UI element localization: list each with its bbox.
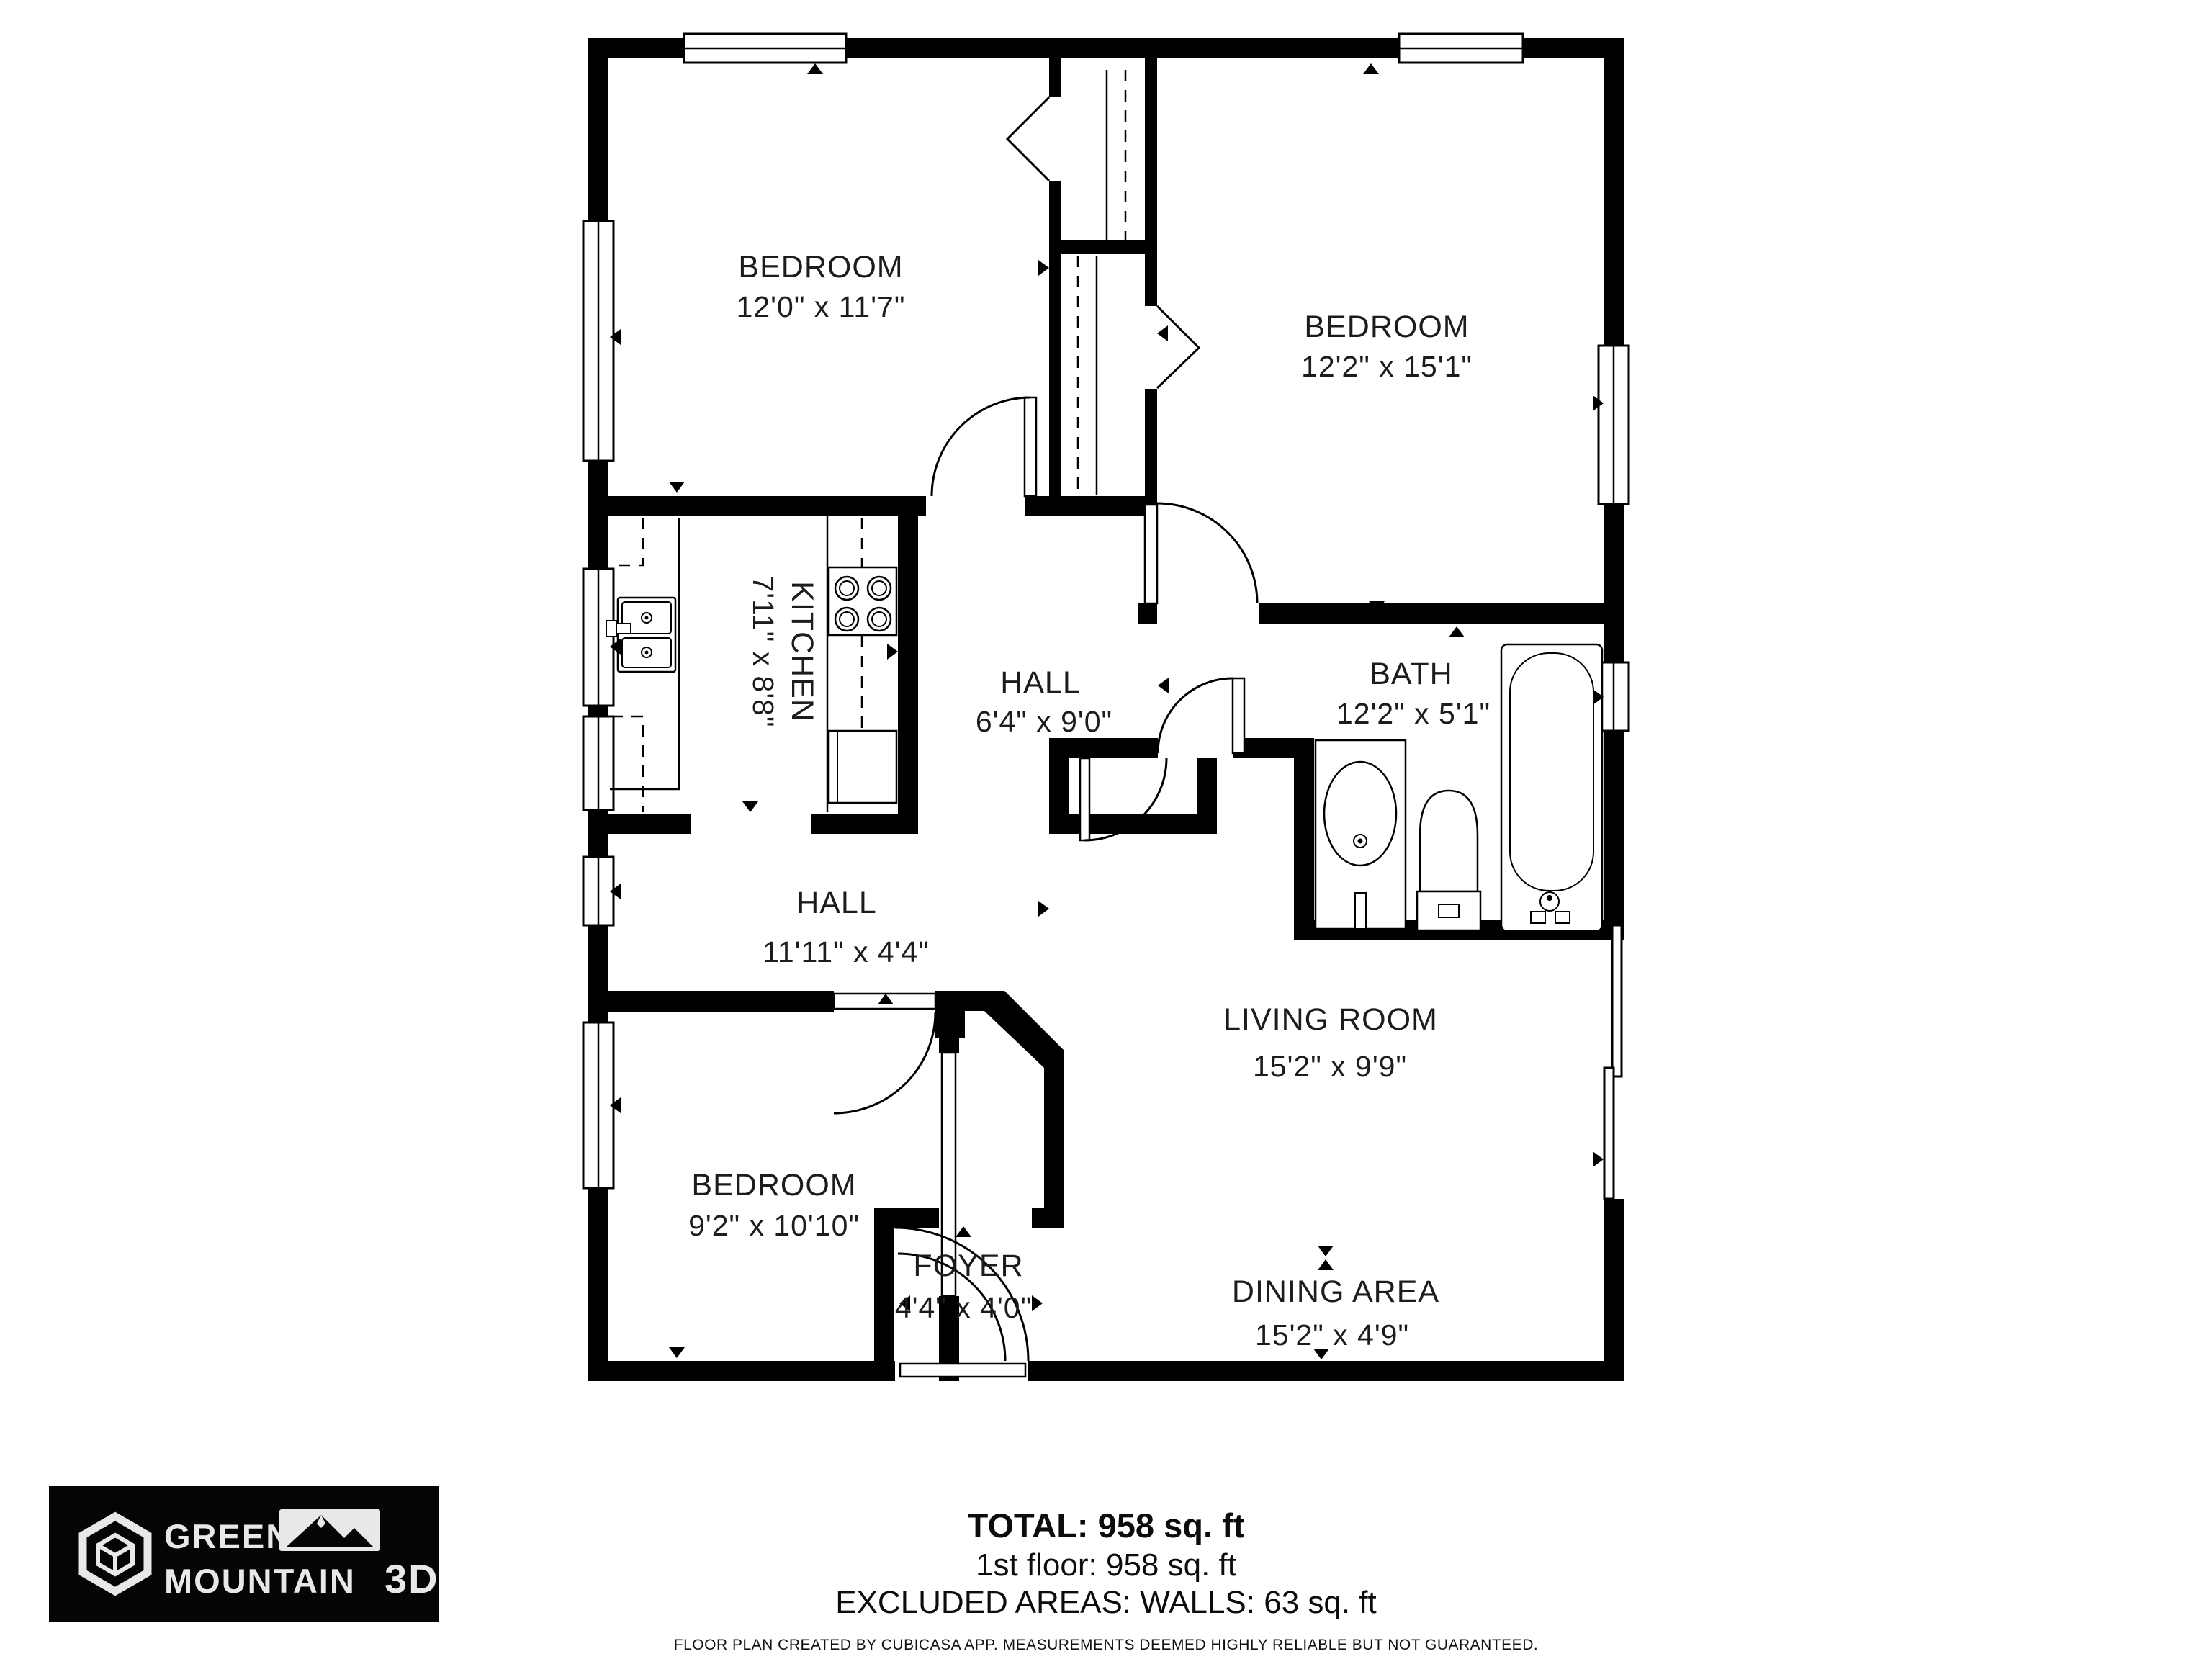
floor-plan-page: BEDROOM 12'0" x 11'7" BEDROOM 12'2" x 15… [0, 0, 2212, 1659]
svg-text:7'11" x 8'8": 7'11" x 8'8" [747, 575, 780, 727]
room-label-kitchen: KITCHEN 7'11" x 8'8" [747, 575, 819, 727]
svg-text:HALL: HALL [1000, 665, 1081, 700]
closet-chevron-bedroom1 [1007, 97, 1049, 181]
svg-text:12'2" x 15'1": 12'2" x 15'1" [1301, 350, 1473, 383]
stove-icon [829, 567, 896, 635]
window-left-bedroom1 [583, 221, 613, 461]
svg-text:9'2" x 10'10": 9'2" x 10'10" [688, 1209, 860, 1242]
toilet-icon [1417, 791, 1480, 930]
svg-text:15'2" x 9'9": 15'2" x 9'9" [1253, 1050, 1407, 1083]
room-label-hall-lower: HALL 11'11" x 4'4" [763, 886, 930, 968]
bath-sink-icon [1316, 740, 1406, 929]
room-label-living-room: LIVING ROOM 15'2" x 9'9" [1223, 1002, 1438, 1083]
mountain-icon [279, 1509, 380, 1551]
room-label-foyer: FOYER 4'4" x 4'0" [895, 1249, 1032, 1324]
svg-text:KITCHEN: KITCHEN [785, 581, 819, 722]
window-left-kitchen-2 [583, 716, 613, 810]
door-bath [1158, 678, 1244, 753]
svg-text:HALL: HALL [796, 886, 877, 920]
svg-text:LIVING ROOM: LIVING ROOM [1223, 1002, 1438, 1037]
window-top-bedroom2 [1399, 34, 1523, 63]
svg-text:BEDROOM: BEDROOM [691, 1168, 856, 1202]
closet-rails [1078, 70, 1125, 495]
closet-chevron-bedroom2 [1157, 306, 1199, 388]
green-mountain-3d-logo: GREEN MOUNTAIN 3D [49, 1486, 439, 1622]
svg-text:12'2" x 5'1": 12'2" x 5'1" [1336, 697, 1491, 730]
bathtub-icon [1501, 644, 1602, 931]
excluded-area-text: EXCLUDED AREAS: WALLS: 63 sq. ft [835, 1585, 1377, 1620]
door-bedroom1 [932, 397, 1036, 496]
svg-text:12'0" x 11'7": 12'0" x 11'7" [737, 290, 906, 323]
svg-text:FOYER: FOYER [913, 1249, 1023, 1283]
room-label-dining-area: DINING AREA 15'2" x 4'9" [1232, 1274, 1439, 1352]
door-bedroom3 [834, 994, 935, 1113]
svg-text:11'11" x 4'4": 11'11" x 4'4" [763, 935, 930, 968]
sliding-door-living-room [1604, 925, 1622, 1199]
floor1-area-text: 1st floor: 958 sq. ft [976, 1547, 1236, 1583]
room-label-bath: BATH 12'2" x 5'1" [1336, 657, 1491, 730]
logo-line2: MOUNTAIN [164, 1562, 356, 1600]
window-left-hall [583, 857, 613, 925]
svg-text:15'2" x 4'9": 15'2" x 4'9" [1255, 1318, 1409, 1352]
area-summary: TOTAL: 958 sq. ft 1st floor: 958 sq. ft … [674, 1506, 1538, 1653]
svg-text:BEDROOM: BEDROOM [738, 250, 903, 284]
window-right-bedroom2 [1599, 346, 1629, 504]
logo-line1: GREEN [164, 1517, 292, 1555]
window-top-bedroom1 [684, 34, 846, 63]
svg-text:BATH: BATH [1370, 657, 1453, 691]
room-label-bedroom-top-right: BEDROOM 12'2" x 15'1" [1301, 310, 1473, 383]
floor-plan-canvas: BEDROOM 12'0" x 11'7" BEDROOM 12'2" x 15… [0, 0, 2212, 1659]
dishwasher-icon [829, 731, 896, 803]
room-label-bedroom-top-left: BEDROOM 12'0" x 11'7" [737, 250, 906, 323]
room-label-bedroom-lower-left: BEDROOM 9'2" x 10'10" [688, 1168, 860, 1242]
bath-fixtures [1316, 644, 1602, 931]
svg-text:BEDROOM: BEDROOM [1304, 310, 1469, 344]
window-left-bedroom3 [583, 1022, 613, 1188]
room-label-hall-upper: HALL 6'4" x 9'0" [976, 665, 1112, 738]
svg-text:4'4" x 4'0": 4'4" x 4'0" [895, 1291, 1032, 1324]
disclaimer-text: FLOOR PLAN CREATED BY CUBICASA APP. MEAS… [674, 1637, 1538, 1653]
door-bedroom2 [1145, 503, 1257, 603]
svg-text:DINING AREA: DINING AREA [1232, 1274, 1439, 1309]
kitchen-sink-icon [606, 598, 675, 672]
logo-suffix: 3D [385, 1556, 439, 1601]
total-area-text: TOTAL: 958 sq. ft [968, 1506, 1245, 1545]
svg-text:6'4" x 9'0": 6'4" x 9'0" [976, 705, 1112, 738]
